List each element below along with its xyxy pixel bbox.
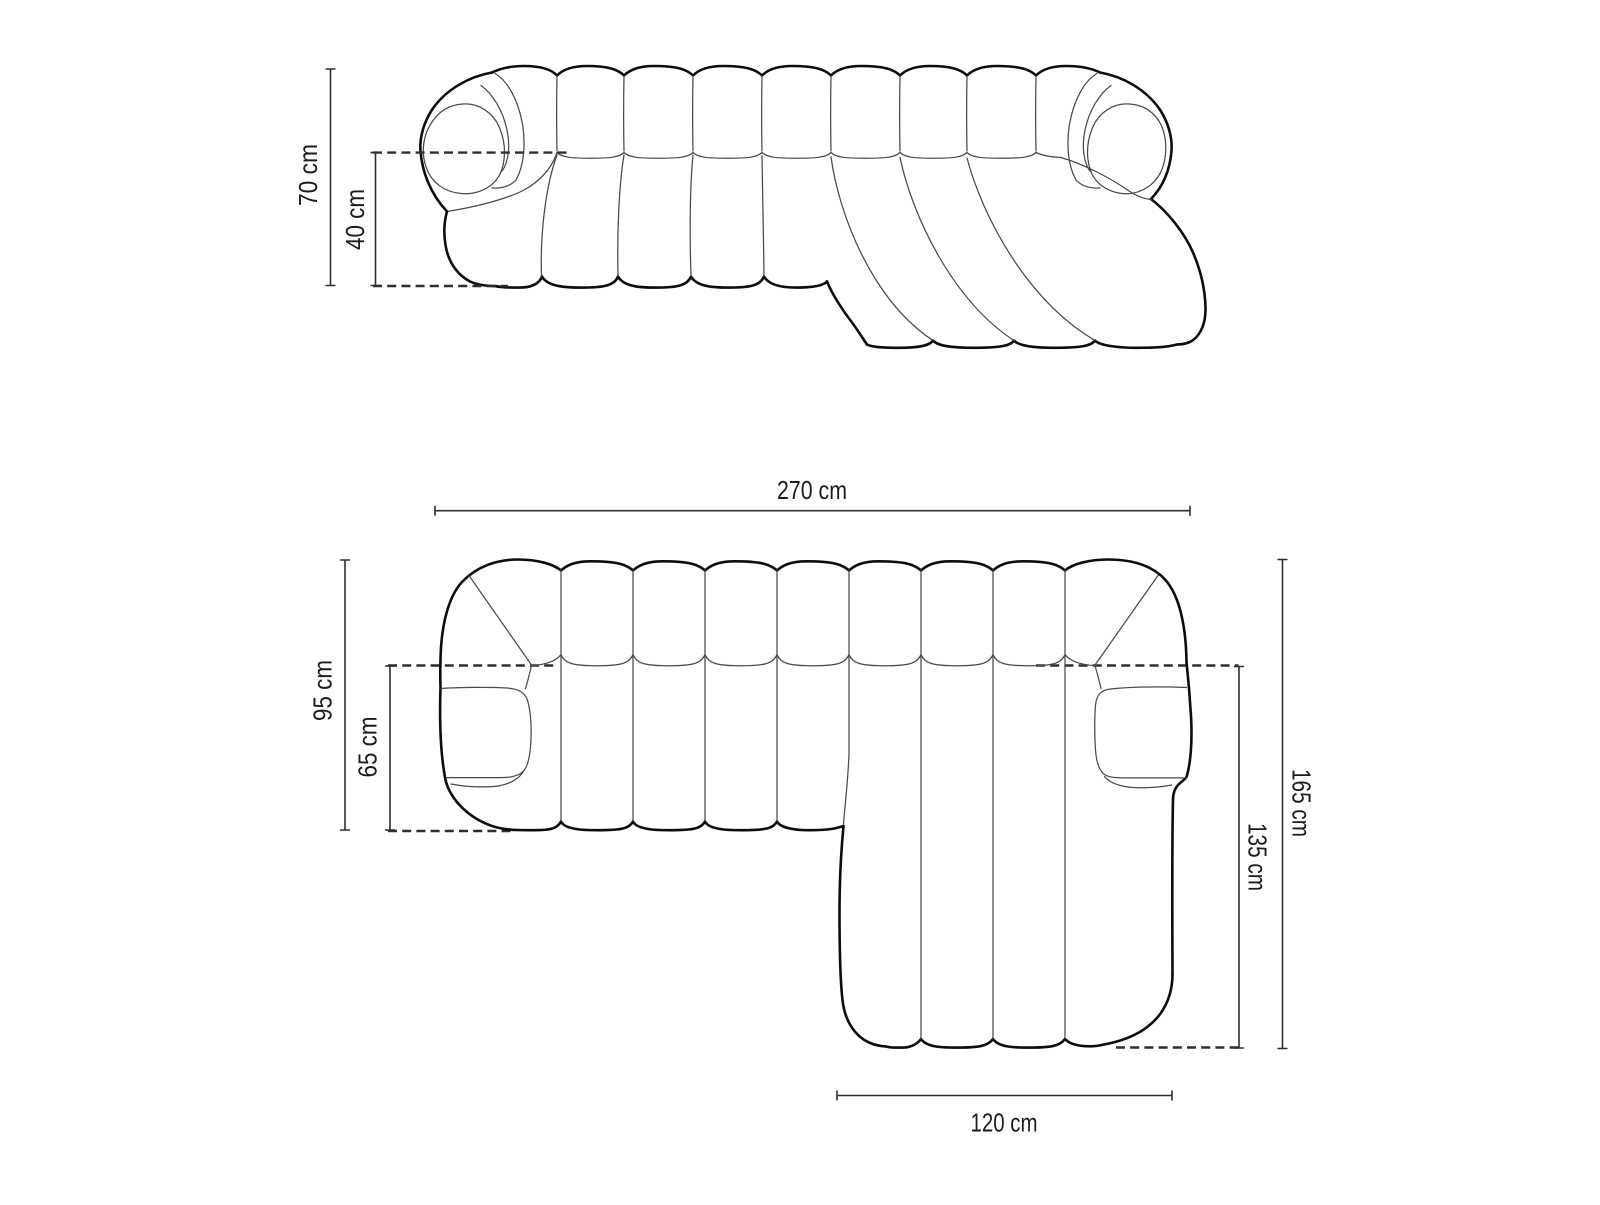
svg-text:270 cm: 270 cm (777, 475, 847, 505)
svg-text:65 cm: 65 cm (353, 717, 383, 778)
svg-text:165 cm: 165 cm (1287, 769, 1317, 837)
svg-text:135 cm: 135 cm (1243, 823, 1273, 891)
svg-text:70 cm: 70 cm (293, 144, 323, 206)
svg-text:40 cm: 40 cm (340, 189, 370, 250)
svg-text:95 cm: 95 cm (308, 660, 338, 721)
svg-text:120 cm: 120 cm (971, 1108, 1038, 1138)
